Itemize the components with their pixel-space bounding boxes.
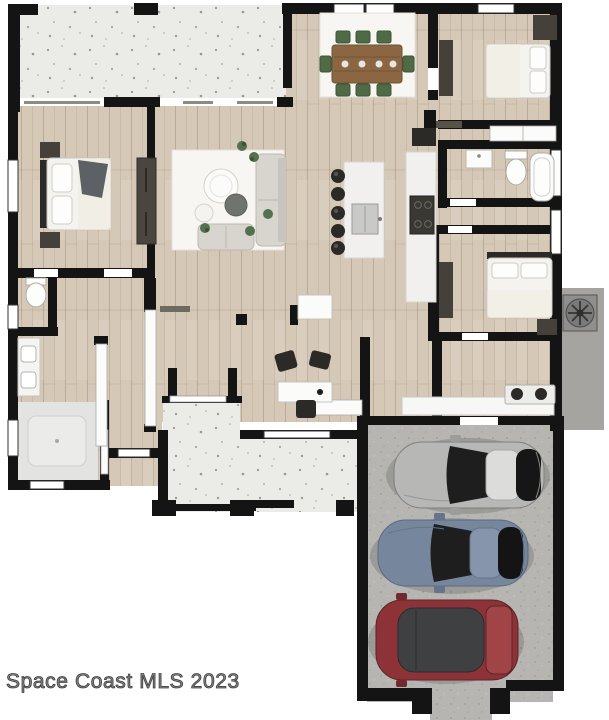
- range-cooktop: [410, 196, 434, 234]
- duvet: [487, 290, 552, 318]
- wall-shelf: [436, 121, 462, 128]
- sofa-back: [278, 158, 286, 242]
- hall-shelf: [160, 306, 190, 312]
- floor-plan-drawing: [0, 0, 609, 720]
- nightstand: [537, 319, 557, 335]
- side-mirror: [450, 435, 461, 442]
- pillow: [52, 196, 72, 224]
- shower-drain: [55, 439, 59, 443]
- pillow: [492, 263, 518, 278]
- blue-car: [370, 513, 534, 594]
- front-porch-floor: [10, 5, 290, 100]
- chair: [296, 400, 316, 418]
- toilet-tank: [505, 151, 527, 159]
- mls-watermark: Space Coast MLS 2023: [6, 670, 240, 694]
- nightstand: [40, 232, 60, 248]
- side-table: [195, 204, 213, 222]
- pillow: [530, 47, 546, 69]
- air-conditioner: [563, 295, 597, 331]
- game-table: [278, 382, 332, 402]
- dresser: [533, 15, 557, 40]
- living-room-furniture: [172, 141, 286, 250]
- pillow: [521, 263, 547, 278]
- duvet: [486, 44, 520, 98]
- ottoman: [225, 194, 247, 216]
- dryer-door: [535, 388, 547, 400]
- toilet: [506, 159, 526, 185]
- side-mirror: [434, 513, 445, 520]
- sink: [21, 372, 36, 388]
- pillow: [52, 164, 72, 192]
- driveway-apron: [430, 702, 492, 720]
- vanity-sink: [466, 150, 492, 168]
- headboard: [40, 160, 47, 228]
- floor-plan-image: Space Coast MLS 2023: [0, 0, 609, 720]
- sink: [21, 346, 36, 362]
- toilet: [26, 283, 46, 307]
- wardrobe: [439, 40, 453, 96]
- dining-furniture: [320, 13, 415, 97]
- side-mirror: [434, 586, 445, 593]
- side-mirror: [396, 680, 407, 687]
- side-mirror: [396, 593, 407, 600]
- nightstand: [40, 142, 60, 158]
- side-mirror: [450, 508, 461, 515]
- silver-car: [386, 435, 550, 515]
- wardrobe: [439, 262, 453, 318]
- pillow: [530, 71, 546, 93]
- built-in-desk: [298, 295, 332, 319]
- washer-door: [511, 388, 523, 400]
- refrigerator: [412, 128, 436, 146]
- red-car: [368, 593, 524, 687]
